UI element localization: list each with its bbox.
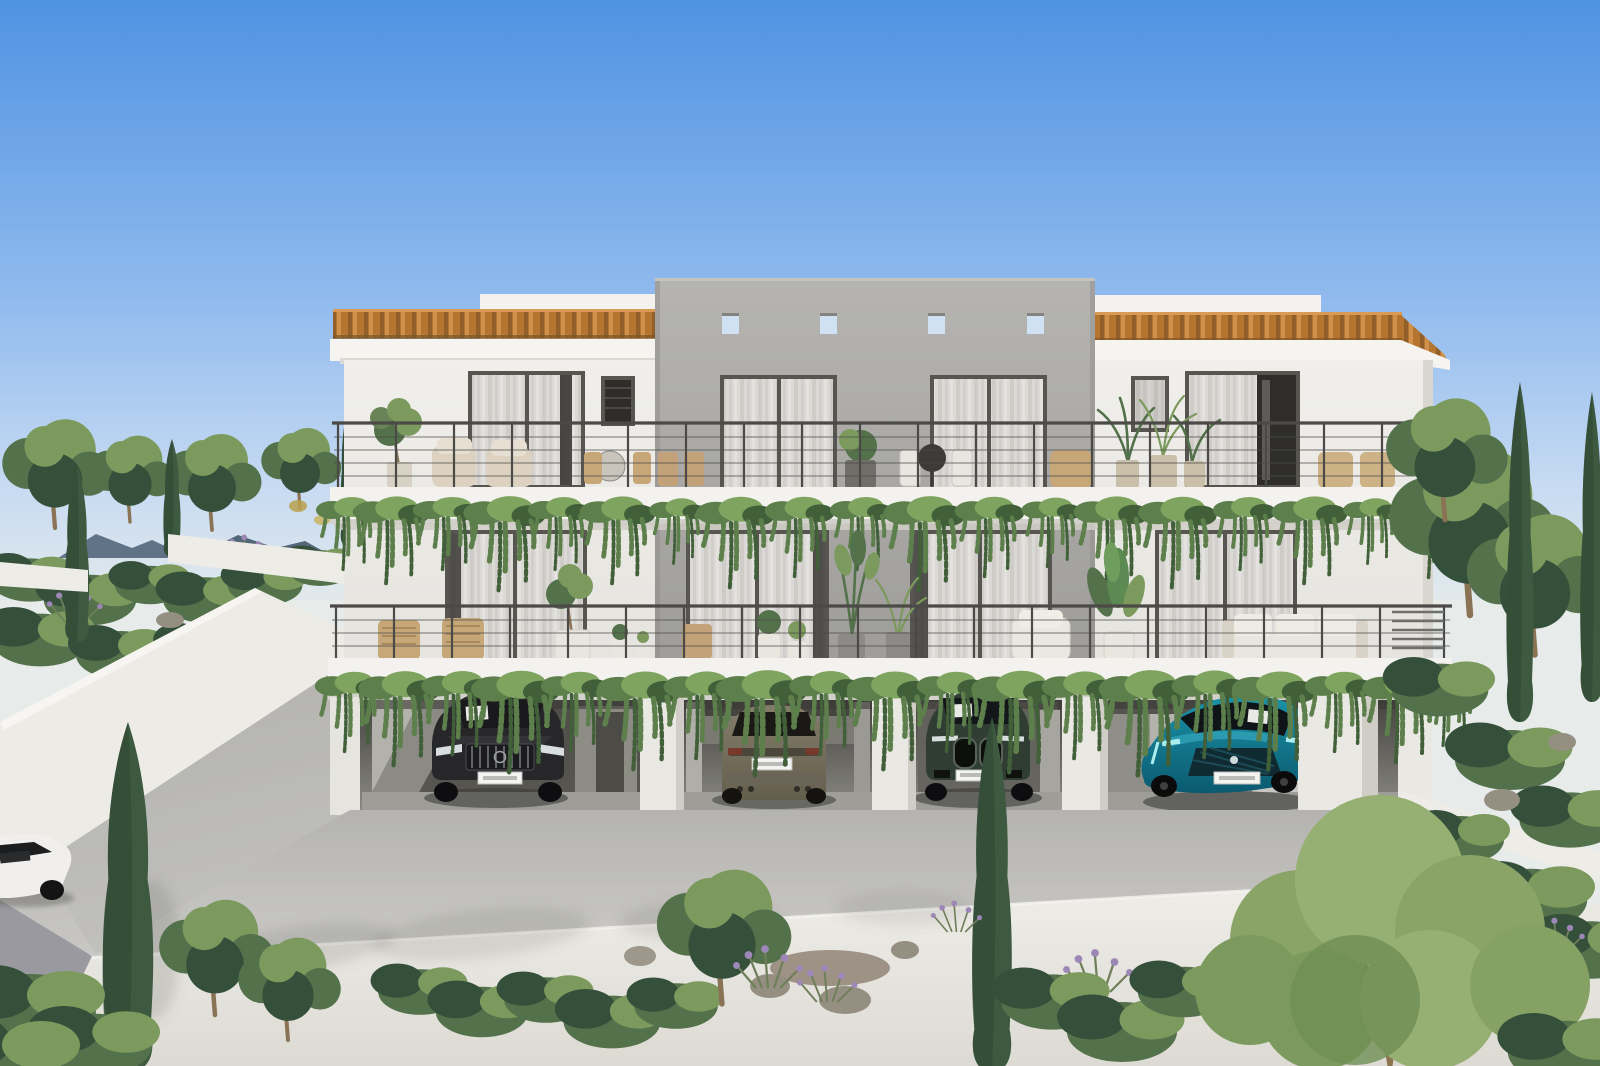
rattan-chair-upper [1050, 450, 1092, 488]
taillight [806, 748, 820, 755]
render-canvas: Photorealistic daytime exterior render o… [0, 0, 1600, 1066]
architectural-render: Photorealistic daytime exterior render o… [0, 0, 1600, 1066]
car-white-partial [0, 834, 74, 907]
wooden-chair-upper [658, 452, 678, 486]
terracotta-roof-left [330, 309, 666, 364]
small-window-upper-left [601, 376, 635, 426]
bistro-chair [584, 452, 602, 484]
headlight [932, 736, 958, 742]
glass-door-upper-center-left [720, 375, 837, 489]
tower-square-opening [1027, 313, 1044, 334]
car-badge [1230, 756, 1238, 764]
white-armchair-lower [1012, 610, 1070, 666]
tower-square-opening [722, 313, 739, 334]
bistro-chair [633, 452, 651, 484]
outdoor-sofa-lower [1222, 614, 1368, 659]
wooden-lounge-chair [378, 620, 420, 660]
tower-square-opening [820, 313, 837, 334]
small-pot [636, 643, 650, 659]
kidney-grille [954, 738, 976, 768]
carport [330, 688, 1432, 815]
tower-square-opening [928, 313, 945, 334]
wooden-lounge-chair [442, 618, 484, 660]
taillight [728, 748, 742, 755]
wooden-chair-lower [682, 624, 712, 659]
windshield-card [1247, 709, 1268, 724]
glass-door-upper-center-right [930, 375, 1047, 489]
